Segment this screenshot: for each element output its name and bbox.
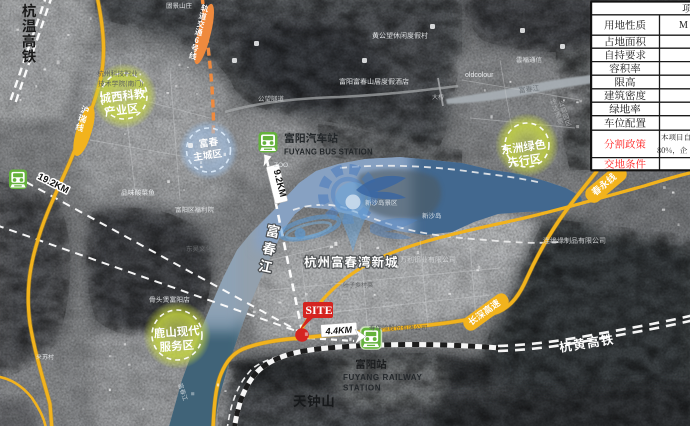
svg-text:FUYANG RAILWAY: FUYANG RAILWAY	[343, 373, 422, 382]
svg-text:STATION: STATION	[343, 384, 381, 393]
svg-text:oldcolour: oldcolour	[465, 72, 494, 79]
svg-text:4.4KM: 4.4KM	[324, 325, 353, 337]
svg-text:FUYANG BUS STATION: FUYANG BUS STATION	[284, 148, 373, 157]
svg-text:SITE: SITE	[305, 303, 332, 317]
svg-text:ZOO: ZOO	[274, 162, 288, 169]
svg-text:M: M	[679, 20, 688, 31]
